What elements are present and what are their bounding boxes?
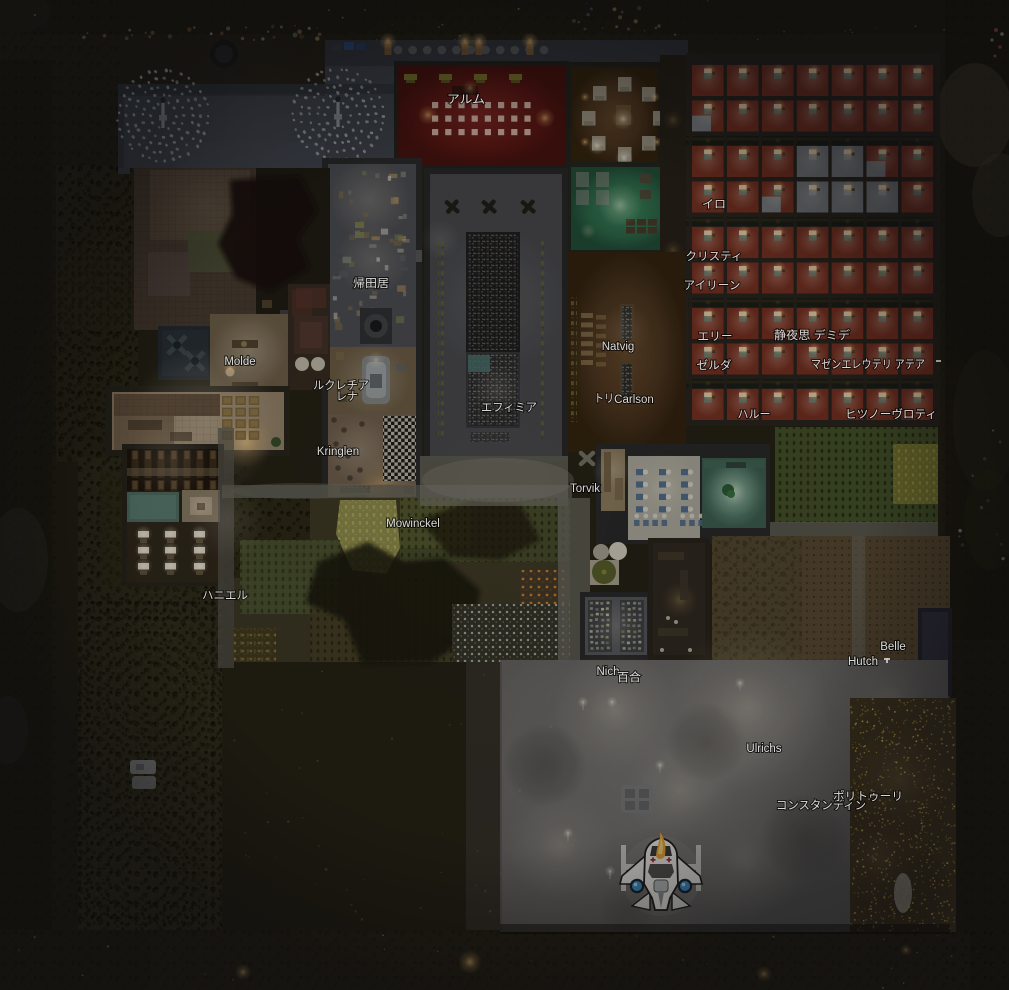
svg-text:百合: 百合	[617, 670, 642, 684]
svg-text:ポリトゥーリ: ポリトゥーリ	[833, 790, 903, 803]
svg-text:エリー: エリー	[698, 331, 733, 343]
svg-text:エフィミア: エフィミア	[481, 402, 537, 414]
svg-text:Mowinckel: Mowinckel	[386, 518, 440, 530]
svg-text:トリ: トリ	[594, 393, 614, 405]
svg-text:クリスティ: クリスティ	[686, 250, 743, 263]
svg-text:ハニエル: ハニエル	[202, 590, 248, 602]
svg-text:イロ: イロ	[702, 199, 726, 211]
svg-text:ゼルダ: ゼルダ	[697, 358, 733, 372]
svg-text:Torvik: Torvik	[570, 483, 600, 495]
svg-text:Hutch: Hutch	[848, 656, 878, 668]
svg-text:Belle: Belle	[880, 641, 906, 653]
svg-text:Natvig: Natvig	[602, 341, 635, 353]
svg-text:Kringlen: Kringlen	[317, 446, 359, 458]
svg-text:静夜思 デミデ: 静夜思 デミデ	[774, 328, 851, 342]
svg-text:マゼンエレウテリ アテア: マゼンエレウテリ アテア	[811, 358, 925, 371]
svg-text:ヒツノーヴロティ: ヒツノーヴロティ	[845, 407, 937, 421]
svg-text:帰田居: 帰田居	[353, 277, 389, 290]
svg-text:アイリーン: アイリーン	[684, 280, 741, 292]
svg-text:アルム: アルム	[447, 93, 485, 106]
svg-text:Carlson: Carlson	[614, 394, 654, 406]
svg-text:Molde: Molde	[224, 356, 255, 368]
svg-text:ハルー: ハルー	[738, 409, 771, 421]
svg-text:Ulrichs: Ulrichs	[746, 743, 781, 755]
svg-text:レナ: レナ	[336, 390, 358, 403]
